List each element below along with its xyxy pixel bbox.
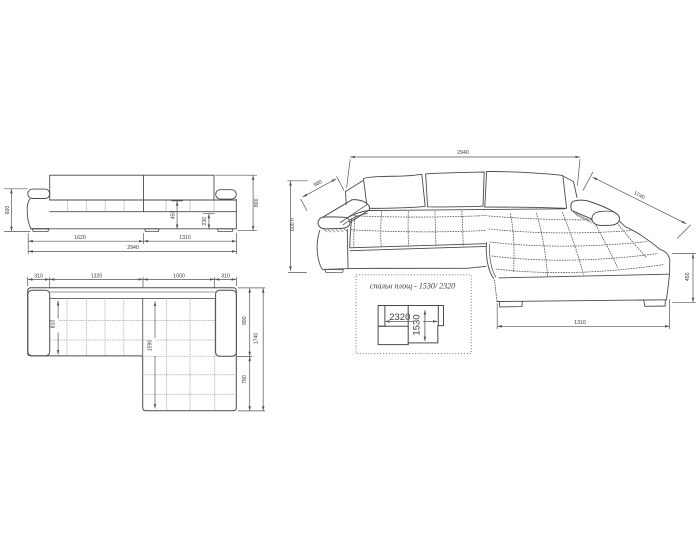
svg-text:980: 980 — [313, 179, 324, 188]
svg-text:1000: 1000 — [173, 273, 185, 279]
svg-text:450: 450 — [685, 272, 691, 281]
svg-text:310: 310 — [34, 273, 43, 279]
svg-text:спальн площ - 1530/ 2320: спальн площ - 1530/ 2320 — [370, 282, 455, 291]
svg-text:2940: 2940 — [457, 150, 469, 156]
svg-text:1740: 1740 — [632, 190, 645, 201]
svg-text:990: 990 — [242, 316, 248, 325]
svg-text:780: 780 — [242, 375, 248, 384]
svg-text:1740: 1740 — [254, 333, 260, 345]
svg-text:230: 230 — [202, 217, 208, 226]
svg-text:2320: 2320 — [389, 312, 410, 323]
svg-text:810: 810 — [51, 320, 57, 329]
svg-text:1310: 1310 — [179, 235, 191, 241]
svg-text:2940: 2940 — [127, 245, 139, 251]
svg-text:1590: 1590 — [148, 340, 154, 352]
svg-text:1620: 1620 — [74, 235, 86, 241]
svg-text:1530: 1530 — [412, 314, 423, 335]
svg-text:1310: 1310 — [574, 320, 586, 326]
svg-text:600: 600 — [5, 206, 11, 215]
svg-text:310: 310 — [221, 273, 230, 279]
svg-text:600 h: 600 h — [290, 218, 296, 231]
svg-text:800: 800 — [254, 198, 260, 207]
svg-text:1320: 1320 — [91, 273, 103, 279]
svg-text:450: 450 — [171, 211, 177, 220]
